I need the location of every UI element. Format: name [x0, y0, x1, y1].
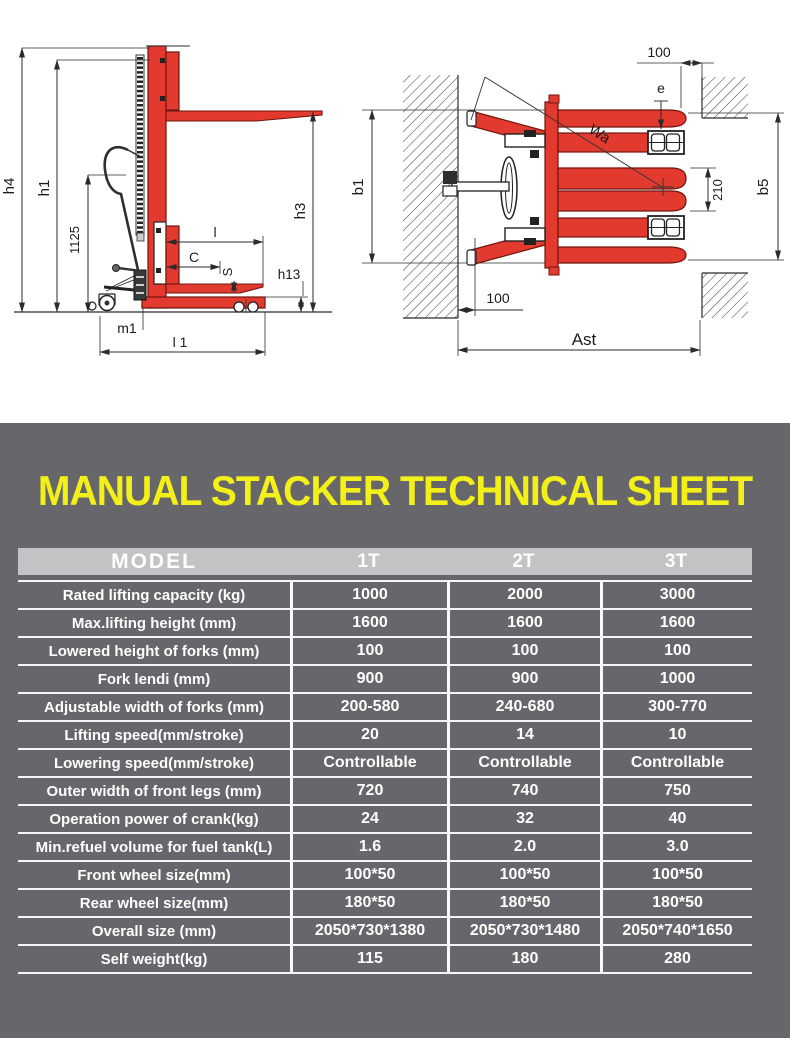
- table-row: Rated lifting capacity (kg) 1000 2000 30…: [18, 582, 752, 610]
- table-row: Min.refuel volume for fuel tank(L) 1.6 2…: [18, 834, 752, 862]
- row-value: 3000: [600, 582, 752, 608]
- row-value: 1.6: [290, 834, 447, 860]
- page-title: MANUAL STACKER TECHNICAL SHEET: [28, 467, 763, 515]
- row-value: 280: [600, 946, 752, 972]
- dim-label-h4: h4: [1, 178, 18, 195]
- dim-label-e: e: [657, 80, 665, 96]
- dim-label-s: S: [220, 267, 235, 276]
- row-value: 2050*730*1380: [290, 918, 447, 944]
- dim-label-bottom-100: 100: [486, 290, 510, 306]
- row-label: Overall size (mm): [18, 923, 290, 940]
- row-value: 900: [290, 666, 447, 692]
- row-value: 180: [447, 946, 600, 972]
- lowered-fork-blade: [166, 284, 263, 293]
- row-value: 20: [290, 722, 447, 748]
- row-value: 1000: [290, 582, 447, 608]
- row-label: Fork lendi (mm): [18, 671, 290, 688]
- table-row: Max.lifting height (mm) 1600 1600 1600: [18, 610, 752, 638]
- table-row: Overall size (mm) 2050*730*1380 2050*730…: [18, 918, 752, 946]
- row-value: 900: [447, 666, 600, 692]
- fork-lower: [558, 191, 686, 211]
- row-value: 1600: [600, 610, 752, 636]
- row-label: Max.lifting height (mm): [18, 615, 290, 632]
- dim-label-c: C: [189, 249, 199, 265]
- technical-sheet-page: h4 h1 1125 h3 l C: [0, 0, 790, 1038]
- lever-knob: [113, 265, 120, 272]
- table-row: Lowered height of forks (mm) 100 100 100: [18, 638, 752, 666]
- row-value: 750: [600, 778, 752, 804]
- table-row: Lifting speed(mm/stroke) 20 14 10: [18, 722, 752, 750]
- row-value: 24: [290, 806, 447, 832]
- table-row: Self weight(kg) 115 180 280: [18, 946, 752, 974]
- dim-label-b5: b5: [755, 179, 772, 196]
- row-label: Min.refuel volume for fuel tank(L): [18, 839, 290, 856]
- row-label: Lifting speed(mm/stroke): [18, 727, 290, 744]
- table-body: Rated lifting capacity (kg) 1000 2000 30…: [18, 580, 752, 974]
- row-value: 3.0: [600, 834, 752, 860]
- technical-drawings: h4 h1 1125 h3 l C: [0, 0, 790, 423]
- row-value: 100*50: [600, 862, 752, 888]
- row-value: 740: [447, 778, 600, 804]
- row-label: Front wheel size(mm): [18, 867, 290, 884]
- row-value: 32: [447, 806, 600, 832]
- front-wheel: [248, 302, 258, 312]
- row-value: 115: [290, 946, 447, 972]
- table-row: Fork lendi (mm) 900 900 1000: [18, 666, 752, 694]
- row-value: 240-680: [447, 694, 600, 720]
- row-value: 100*50: [290, 862, 447, 888]
- spec-panel: MANUAL STACKER TECHNICAL SHEET MODEL 1T …: [0, 423, 790, 1038]
- dim-label-h1: h1: [36, 180, 53, 197]
- row-value: 2.0: [447, 834, 600, 860]
- row-label: Lowering speed(mm/stroke): [18, 755, 290, 772]
- row-value: 200-580: [290, 694, 447, 720]
- side-view-drawing: h4 h1 1125 h3 l C: [1, 46, 332, 356]
- pump-handle: [105, 147, 138, 270]
- row-value: 10: [600, 722, 752, 748]
- row-value: Controllable: [290, 750, 447, 776]
- raised-fork-carriage: [166, 52, 179, 110]
- row-value: 100: [600, 638, 752, 664]
- steer-axle: [452, 182, 509, 191]
- table-row: Adjustable width of forks (mm) 200-580 2…: [18, 694, 752, 722]
- table-row: Operation power of crank(kg) 24 32 40: [18, 806, 752, 834]
- straddle-leg-top: [558, 110, 686, 127]
- table-row: Front wheel size(mm) 100*50 100*50 100*5…: [18, 862, 752, 890]
- row-value: 180*50: [290, 890, 447, 916]
- dim-label-210: 210: [710, 179, 725, 201]
- row-label: Rear wheel size(mm): [18, 895, 290, 912]
- row-label: Outer width of front legs (mm): [18, 783, 290, 800]
- row-value: 40: [600, 806, 752, 832]
- header-col-3t: 3T: [600, 551, 752, 573]
- row-label: Rated lifting capacity (kg): [18, 587, 290, 604]
- row-label: Self weight(kg): [18, 951, 290, 968]
- straddle-leg-bottom: [558, 247, 686, 263]
- row-value: 2050*740*1650: [600, 918, 752, 944]
- spec-table: MODEL 1T 2T 3T Rated lifting capacity (k…: [18, 548, 752, 974]
- row-value: 1600: [447, 610, 600, 636]
- dim-label-1125: 1125: [67, 226, 82, 254]
- header-model: MODEL: [18, 550, 290, 574]
- table-row: Outer width of front legs (mm) 720 740 7…: [18, 778, 752, 806]
- row-value: 720: [290, 778, 447, 804]
- stacker-drawings-svg: h4 h1 1125 h3 l C: [0, 0, 790, 423]
- lowered-fork-carriage: [166, 226, 179, 284]
- row-label: Lowered height of forks (mm): [18, 643, 290, 660]
- row-value: 100: [290, 638, 447, 664]
- mast-crossbeam: [545, 102, 558, 268]
- table-header-row: MODEL 1T 2T 3T: [18, 548, 752, 575]
- row-value: 1600: [290, 610, 447, 636]
- row-value: 1000: [600, 666, 752, 692]
- table-row: Rear wheel size(mm) 180*50 180*50 180*50: [18, 890, 752, 918]
- row-value: 180*50: [447, 890, 600, 916]
- dim-label-ast: Ast: [572, 330, 597, 349]
- right-wall-top: [702, 77, 748, 118]
- front-wheel: [234, 302, 244, 312]
- row-value: Controllable: [600, 750, 752, 776]
- raised-fork-blade: [166, 111, 322, 121]
- dim-label-l: l: [213, 224, 216, 240]
- row-value: Controllable: [447, 750, 600, 776]
- dim-label-top-100: 100: [647, 44, 671, 60]
- top-view-drawing: b1: [350, 44, 784, 356]
- row-label: Adjustable width of forks (mm): [18, 699, 290, 716]
- dim-label-m1: m1: [117, 320, 137, 336]
- row-value: 180*50: [600, 890, 752, 916]
- header-col-2t: 2T: [447, 551, 600, 573]
- dim-label-b1: b1: [350, 179, 367, 196]
- dim-label-h13: h13: [278, 267, 301, 282]
- row-value: 300-770: [600, 694, 752, 720]
- steer-block: [443, 171, 457, 184]
- row-value: 100: [447, 638, 600, 664]
- row-value: 2050*730*1480: [447, 918, 600, 944]
- caster-wheel: [88, 302, 96, 310]
- header-col-1t: 1T: [290, 551, 447, 573]
- row-label: Operation power of crank(kg): [18, 811, 290, 828]
- dim-label-h3: h3: [292, 203, 309, 220]
- row-value: 14: [447, 722, 600, 748]
- fork-upper: [558, 168, 686, 189]
- table-row: Lowering speed(mm/stroke) Controllable C…: [18, 750, 752, 778]
- wheel-arm-bottom: [558, 218, 652, 237]
- row-value: 2000: [447, 582, 600, 608]
- right-wall-bottom: [702, 273, 748, 318]
- dim-label-l1: l 1: [173, 334, 188, 350]
- front-leg: [142, 297, 265, 308]
- row-value: 100*50: [447, 862, 600, 888]
